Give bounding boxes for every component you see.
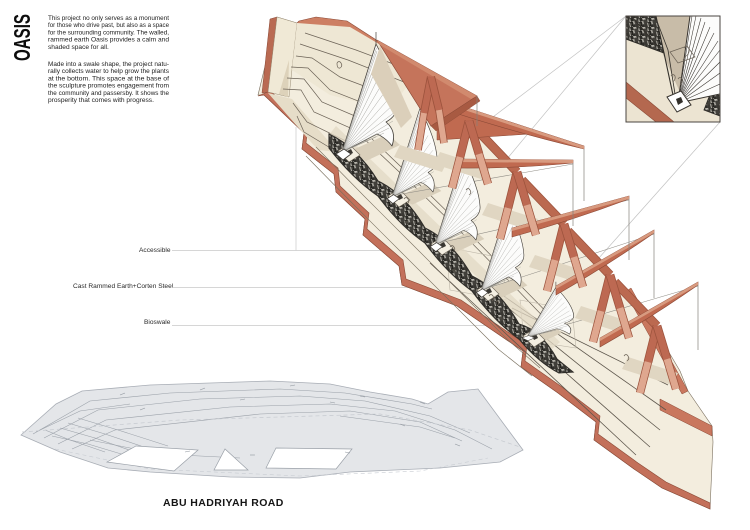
svg-text:ABU HADRIYAH ROAD: ABU HADRIYAH ROAD	[163, 497, 284, 509]
svg-text:at the bottom. This space at t: at the bottom. This space at the base of	[48, 75, 169, 82]
svg-text:Made into a swale shape, the p: Made into a swale shape, the project nat…	[48, 61, 169, 68]
svg-text:This project no only serves as: This project no only serves as a monumen…	[48, 15, 169, 22]
svg-text:for the surrounding community.: for the surrounding community. The walle…	[48, 29, 169, 36]
svg-text:rammed earth Oasis provides a: rammed earth Oasis provides a calm and	[48, 37, 169, 44]
svg-text:Bioswale: Bioswale	[144, 319, 171, 326]
svg-text:rally collects water to help g: rally collects water to help grow the pl…	[48, 68, 170, 75]
svg-text:Cast Rammed Earth+Corten Steel: Cast Rammed Earth+Corten Steel	[73, 283, 174, 290]
svg-text:prosperity that comes with pro: prosperity that comes with progress.	[48, 97, 154, 104]
svg-text:the sculpture promotes engagem: the sculpture promotes engagement from	[48, 83, 169, 90]
svg-text:the community and passersby. I: the community and passersby. It shows th…	[48, 90, 169, 97]
svg-text:Accessible: Accessible	[139, 247, 171, 254]
svg-text:shaded space for all.: shaded space for all.	[48, 44, 109, 51]
svg-text:OASIS: OASIS	[9, 14, 35, 61]
svg-text:for those who drive past, but: for those who drive past, but also as a …	[48, 22, 169, 29]
